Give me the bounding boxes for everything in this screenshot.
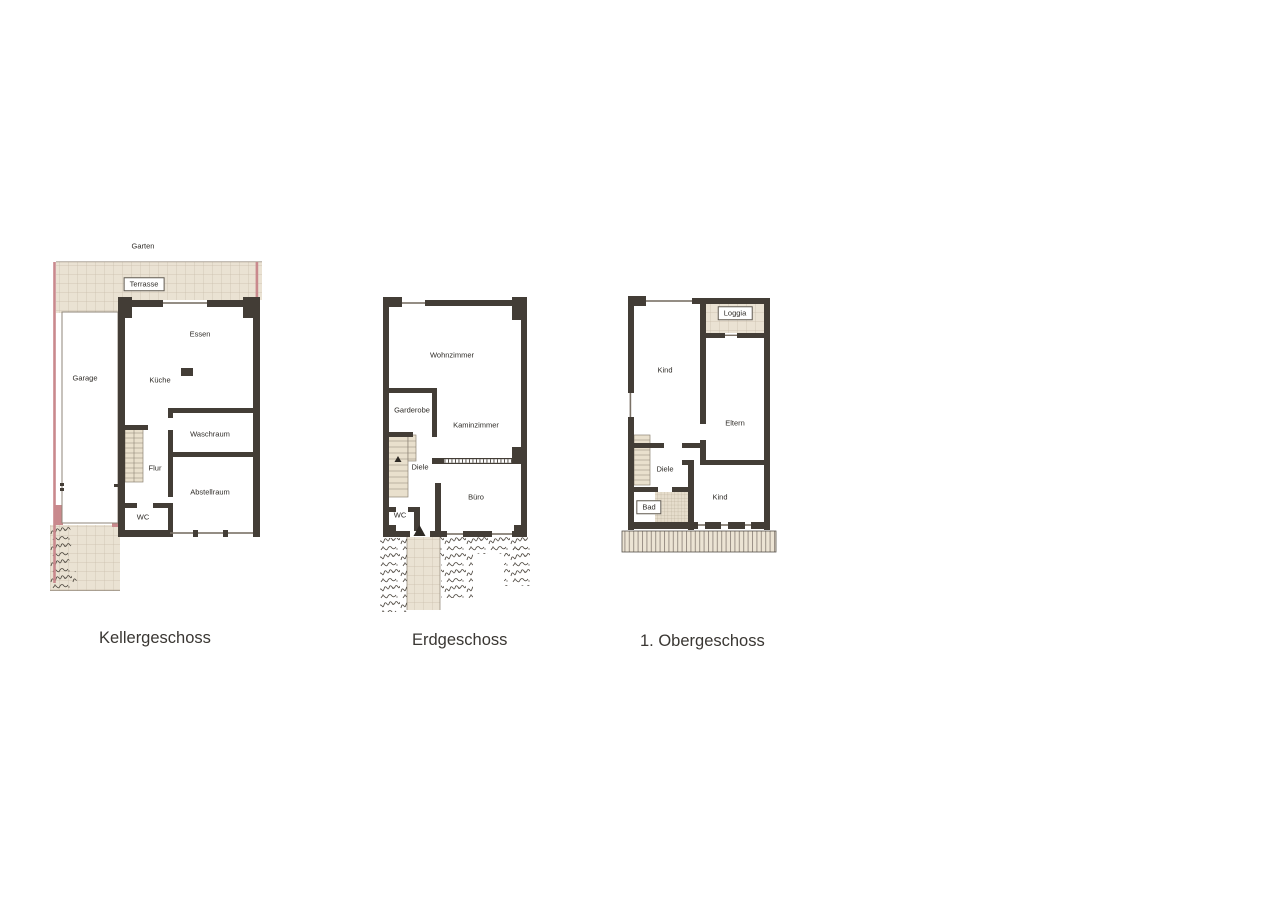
room-label-kaminzimmer: Kaminzimmer (453, 421, 499, 429)
caption-obergeschoss: 1. Obergeschoss (640, 632, 765, 651)
area-label-terrasse: Terrasse (124, 277, 165, 291)
obergeschoss-drawing (620, 294, 778, 556)
room-label-buero: Büro (468, 493, 484, 501)
room-label-garage: Garage (72, 374, 97, 382)
obergeschoss-plan: Kind Loggia Eltern Diele Bad Kind (620, 294, 778, 556)
room-label-kueche: Küche (149, 376, 170, 384)
room-label-essen: Essen (190, 330, 211, 338)
room-label-wohnzimmer: Wohnzimmer (430, 351, 474, 359)
room-label-flur: Flur (149, 464, 162, 472)
room-label-waschraum: Waschraum (190, 430, 230, 438)
room-label-wc-eg: WC (394, 511, 407, 519)
room-label-wc-keller: WC (137, 513, 150, 521)
caption-kellergeschoss: Kellergeschoss (99, 629, 211, 648)
kellergeschoss-drawing (50, 238, 265, 600)
floor-plan-page: Garten Terrasse Garage Essen Küche Wasch… (0, 0, 1280, 906)
area-label-loggia: Loggia (718, 306, 753, 320)
kellergeschoss-plan: Garten Terrasse Garage Essen Küche Wasch… (50, 238, 265, 600)
room-label-diele-og: Diele (656, 465, 673, 473)
room-label-kind-unten: Kind (712, 493, 727, 501)
area-label-garten: Garten (132, 242, 155, 250)
room-label-diele-eg: Diele (411, 463, 428, 471)
room-label-abstellraum: Abstellraum (190, 488, 230, 496)
room-label-garderobe: Garderobe (394, 406, 430, 414)
room-label-bad: Bad (636, 500, 661, 514)
room-label-kind-oben: Kind (657, 366, 672, 374)
caption-erdgeschoss: Erdgeschoss (412, 631, 507, 650)
erdgeschoss-drawing (378, 296, 534, 614)
erdgeschoss-plan: Wohnzimmer Garderobe Kaminzimmer Diele W… (378, 296, 534, 614)
room-label-eltern: Eltern (725, 419, 745, 427)
